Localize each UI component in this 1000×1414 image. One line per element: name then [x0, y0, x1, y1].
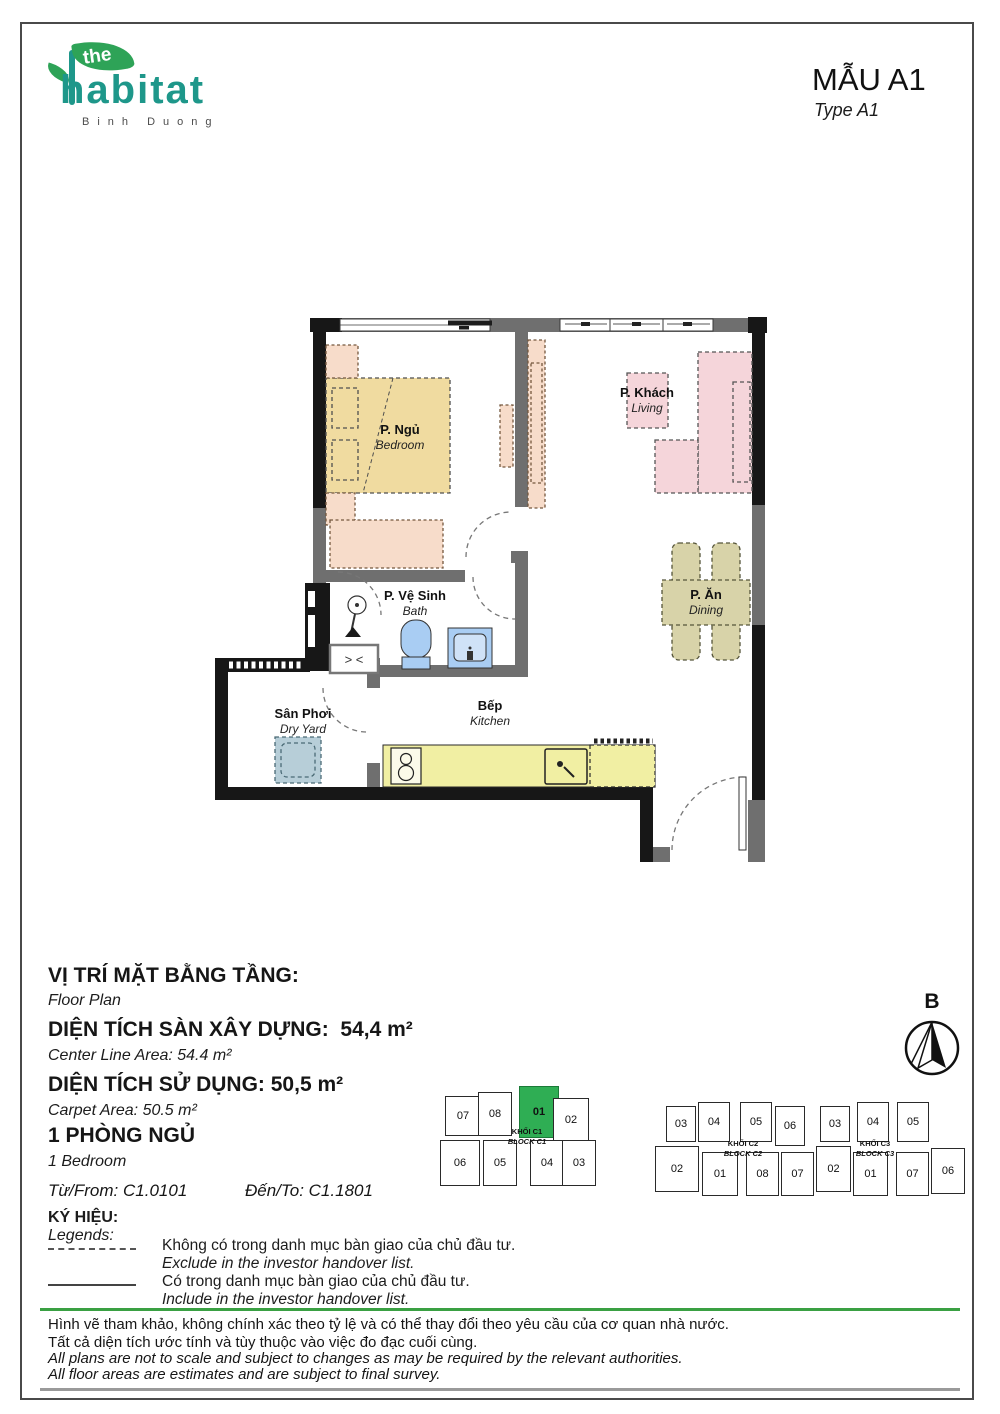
legend-title-en: Legends:	[48, 1227, 114, 1245]
center-line-area-en: Center Line Area: 54.4 m²	[48, 1047, 232, 1065]
unit-cell: 07	[896, 1152, 929, 1196]
disclaimer-en-2: All floor areas are estimates and are su…	[48, 1366, 440, 1383]
center-line-area-vi: DIỆN TÍCH SÀN XÂY DỰNG: 54,4 m²	[48, 1018, 413, 1042]
window-living	[560, 319, 713, 331]
page-subtitle: Type A1	[814, 100, 879, 121]
unit-cell: 07	[781, 1152, 814, 1196]
north-compass: B	[898, 990, 966, 1082]
room-label-bedroom: P. Ngủ Bedroom	[376, 422, 425, 452]
compass-icon	[900, 1014, 964, 1078]
fridge-space	[590, 745, 655, 787]
svg-text:> <: > <	[345, 652, 364, 667]
legend-item-exclude-vi: Không có trong danh mục bàn giao của chủ…	[162, 1237, 515, 1255]
brochure-page: the habitat Binh Duong MẪU A1 Type A1	[0, 0, 1000, 1414]
tv-unit	[500, 405, 513, 467]
unit-range-to: Đến/To: C1.1801	[245, 1181, 373, 1201]
toilet	[401, 620, 431, 658]
room-label-dryyard: Sân Phơi Dry Yard	[275, 706, 332, 736]
green-divider	[40, 1308, 960, 1311]
bedroom-count-vi: 1 PHÒNG NGỦ	[48, 1124, 195, 1148]
unit-cell: 02	[553, 1098, 589, 1142]
legend-solid-line	[48, 1284, 136, 1286]
window-bedroom	[340, 319, 492, 331]
unit-cell: 02	[655, 1146, 699, 1192]
floor-plan: > <	[215, 315, 770, 875]
shower-head	[345, 596, 366, 637]
block-c2-label: KHỐI C2 BLOCK C2	[718, 1139, 768, 1159]
room-label-kitchen: Bếp Kitchen	[470, 698, 510, 728]
unit-cell: 05	[897, 1102, 929, 1142]
unit-cell: 06	[931, 1148, 965, 1194]
bedroom-door-arc	[466, 512, 511, 557]
washing-machine	[275, 737, 321, 783]
unit-cell: 04	[698, 1102, 730, 1142]
block-c1-label: KHỐI C1 BLOCK C1	[498, 1127, 556, 1147]
unit-cell: 04	[530, 1140, 564, 1186]
unit-cell: 04	[857, 1102, 889, 1142]
unit-cell: 05	[483, 1140, 517, 1186]
habitat-logo: the habitat Binh Duong	[40, 28, 260, 138]
logo-name: habitat	[60, 68, 205, 113]
room-label-bath: P. Vệ Sinh Bath	[384, 588, 446, 618]
unit-cell: 07	[445, 1096, 481, 1136]
room-label-living: P. Khách Living	[620, 385, 674, 415]
unit-cell: 03	[820, 1106, 850, 1142]
unit-cell: 05	[740, 1102, 772, 1142]
bench	[330, 520, 443, 568]
nightstand	[326, 345, 358, 378]
unit-cell: 02	[816, 1146, 851, 1192]
stove	[391, 748, 421, 784]
logo-the: the	[82, 44, 113, 70]
unit-cell: 08	[746, 1152, 779, 1196]
furniture	[275, 340, 752, 787]
floor-plan-drawing: > <	[215, 315, 770, 875]
unit-cell: 01	[853, 1152, 888, 1196]
sofa	[698, 352, 752, 493]
legend-item-include-en: Include in the investor handover list.	[162, 1291, 409, 1309]
legend-item-include-vi: Có trong danh mục bàn giao của chủ đầu t…	[162, 1273, 470, 1291]
page-title: MẪU A1	[812, 62, 926, 98]
entry-door-arc	[672, 777, 745, 850]
carpet-area-vi: DIỆN TÍCH SỬ DỤNG: 50,5 m²	[48, 1073, 343, 1097]
floor-plan-heading-vi: VỊ TRÍ MẶT BẰNG TẦNG:	[48, 964, 299, 988]
disclaimer-en-1: All plans are not to scale and subject t…	[48, 1350, 683, 1367]
block-c3-label: KHỐI C3 BLOCK C3	[850, 1139, 900, 1159]
unit-cell: 01	[702, 1152, 738, 1196]
disclaimer-vi-2: Tất cả diện tích ước tính và tùy thuộc v…	[48, 1334, 477, 1351]
floor-plan-heading-en: Floor Plan	[48, 992, 121, 1010]
room-label-dining: P. Ăn Dining	[689, 587, 723, 617]
legend-title-vi: KÝ HIỆU:	[48, 1209, 118, 1227]
compass-north-label: B	[898, 990, 966, 1014]
unit-cell: 06	[775, 1106, 805, 1146]
unit-cell: 03	[666, 1106, 696, 1142]
unit-cell: 03	[562, 1140, 596, 1186]
dining-chair	[672, 543, 700, 585]
dining-chair	[712, 543, 740, 585]
bath-door-arc	[473, 577, 515, 619]
legend-item-exclude-en: Exclude in the investor handover list.	[162, 1255, 414, 1273]
logo-subtitle: Binh Duong	[82, 116, 220, 128]
bedroom-count-en: 1 Bedroom	[48, 1153, 126, 1171]
bottom-divider	[40, 1388, 960, 1391]
entry-door-leaf	[739, 777, 746, 850]
sofa	[655, 440, 698, 493]
legend-dashed-line	[48, 1248, 136, 1250]
unit-cell: 06	[440, 1140, 480, 1186]
carpet-area-en: Carpet Area: 50.5 m²	[48, 1102, 197, 1120]
unit-range-from: Từ/From: C1.0101	[48, 1181, 187, 1201]
disclaimer-vi-1: Hình vẽ tham khảo, không chính xác theo …	[48, 1316, 729, 1333]
